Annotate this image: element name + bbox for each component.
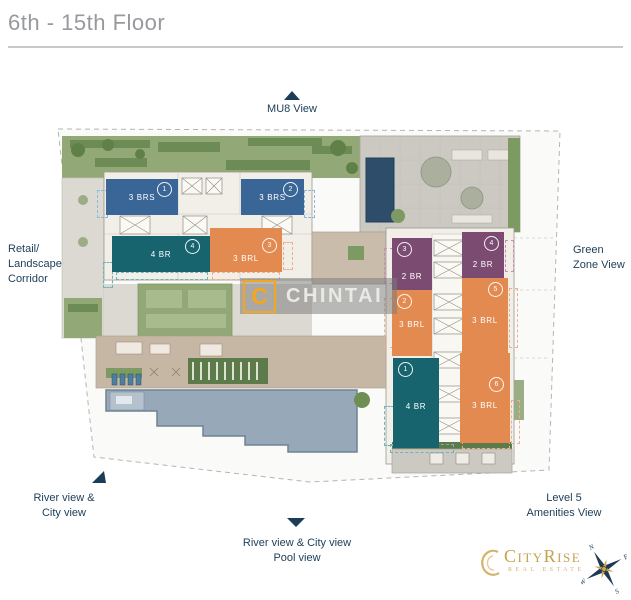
balcony-outline [509, 288, 518, 348]
unit-type-label: 2 BR [462, 260, 504, 269]
cityrise-subtitle: Real Estate [508, 567, 585, 573]
chintai-logo-text: CHINTAI [286, 285, 383, 308]
unit-number-badge: 3 [397, 242, 412, 257]
unit-block-left-2: 2 3 BRS [241, 179, 304, 215]
unit-block-right-4: 4 2 BR [462, 232, 504, 278]
cityrise-logo: CityRise Real Estate [478, 546, 585, 580]
cityrise-name: CityRise [504, 546, 585, 566]
compass-s: S [613, 587, 620, 596]
unit-type-label: 3 BRL [210, 254, 282, 263]
compass-icon: N E S W [581, 542, 627, 596]
unit-block-left-1: 1 3 BRS [106, 179, 178, 215]
unit-number-badge: 3 [262, 238, 277, 253]
unit-type-label: 3 BRL [460, 401, 510, 410]
unit-type-label: 4 BR [393, 402, 439, 411]
unit-block-left-3: 3 3 BRL [210, 228, 282, 272]
view-label-bottom-left: River view & City view [22, 491, 106, 521]
compass-w: W [581, 576, 588, 586]
view-label-bottom-center: River view & City view Pool view [217, 536, 377, 566]
boundary-arrow [92, 471, 106, 483]
unit-type-label: 3 BRS [241, 193, 304, 202]
unit-block-right-2: 2 3 BRL [392, 290, 432, 356]
compass-n: N [587, 543, 596, 553]
unit-type-label: 3 BRL [462, 316, 508, 325]
unit-number-badge: 2 [397, 294, 412, 309]
balcony-outline [511, 400, 520, 444]
amenity-lap-pool [366, 158, 394, 222]
unit-type-label: 3 BRL [392, 320, 432, 329]
unit-block-right-6: 6 3 BRL [460, 353, 510, 443]
unit-block-left-4: 4 4 BR [112, 236, 210, 272]
view-arrow-up [284, 91, 300, 100]
balcony-outline [283, 242, 293, 270]
chintai-watermark: C CHINTAI [240, 278, 397, 314]
view-label-top: MU8 View [252, 102, 332, 117]
unit-type-label: 3 BRS [106, 193, 178, 202]
view-label-bottom-right: Level 5 Amenities View [512, 491, 616, 521]
floorplan-page: 6th - 15th Floor [0, 0, 631, 600]
unit-number-badge: 5 [488, 282, 503, 297]
compass-e: E [621, 552, 627, 562]
unit-number-badge: 6 [489, 377, 504, 392]
balcony-outline [505, 240, 514, 272]
view-label-left: Retail/ Landscape Corridor [8, 242, 80, 287]
chintai-logo-icon: C [243, 280, 276, 313]
view-arrow-down [287, 518, 305, 527]
view-label-right: Green Zone View [573, 243, 631, 273]
balcony-outline [116, 272, 208, 280]
unit-number-badge: 1 [398, 362, 413, 377]
unit-block-right-3: 3 2 BR [392, 238, 432, 290]
unit-type-label: 2 BR [392, 272, 432, 281]
unit-block-right-1: 1 4 BR [393, 358, 439, 448]
unit-block-right-5: 5 3 BRL [462, 278, 508, 356]
balcony-outline [304, 190, 315, 218]
unit-type-label: 4 BR [112, 250, 210, 259]
unit-number-badge: 4 [484, 236, 499, 251]
cityrise-swirl-icon [478, 546, 502, 580]
